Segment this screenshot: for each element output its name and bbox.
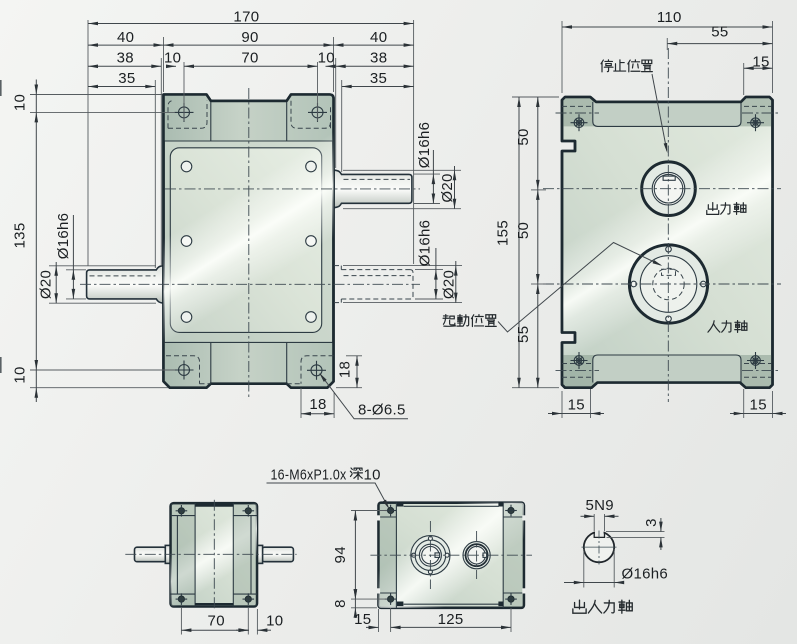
svg-text:3: 3 [643, 518, 660, 527]
svg-text:10: 10 [12, 366, 29, 383]
svg-text:50: 50 [515, 128, 532, 145]
svg-text:40: 40 [370, 29, 387, 46]
svg-text:Ø16h6: Ø16h6 [622, 566, 669, 583]
svg-text:Ø20: Ø20 [38, 270, 55, 299]
svg-text:Ø16h6: Ø16h6 [55, 213, 72, 260]
svg-text:155: 155 [495, 220, 512, 246]
svg-text:8-Ø6.5: 8-Ø6.5 [358, 402, 406, 419]
svg-text:15: 15 [750, 397, 767, 414]
svg-text:16-M6xP1.0x: 16-M6xP1.0x [271, 467, 347, 484]
svg-text:90: 90 [241, 29, 258, 46]
svg-text:35: 35 [118, 70, 135, 87]
svg-text:Ø16h6: Ø16h6 [417, 220, 434, 267]
svg-text:40: 40 [117, 29, 134, 46]
svg-text:10: 10 [164, 50, 181, 67]
svg-text:10: 10 [12, 94, 29, 111]
svg-text:10: 10 [266, 613, 283, 630]
svg-text:Ø20: Ø20 [439, 173, 456, 202]
svg-text:170: 170 [233, 8, 259, 25]
svg-text:Ø16h6: Ø16h6 [416, 122, 433, 169]
svg-text:38: 38 [117, 50, 134, 67]
svg-text:125: 125 [438, 611, 464, 628]
svg-text:8: 8 [332, 599, 349, 608]
svg-text:18: 18 [337, 361, 354, 378]
svg-text:55: 55 [711, 24, 728, 41]
svg-text:Ø20: Ø20 [441, 270, 458, 299]
svg-text:10: 10 [364, 467, 381, 484]
svg-text:55: 55 [515, 326, 532, 343]
svg-text:18: 18 [309, 396, 326, 413]
svg-text:15: 15 [568, 397, 585, 414]
svg-text:10: 10 [318, 50, 335, 67]
svg-text:5N9: 5N9 [585, 497, 613, 514]
svg-text:15: 15 [354, 611, 371, 628]
svg-text:70: 70 [241, 50, 258, 67]
svg-text:50: 50 [515, 222, 532, 239]
svg-text:110: 110 [657, 9, 682, 26]
svg-text:94: 94 [332, 546, 349, 563]
svg-text:35: 35 [370, 70, 387, 87]
svg-text:38: 38 [370, 50, 387, 67]
svg-text:15: 15 [752, 53, 769, 70]
svg-text:135: 135 [12, 223, 29, 249]
svg-text:70: 70 [208, 613, 225, 630]
